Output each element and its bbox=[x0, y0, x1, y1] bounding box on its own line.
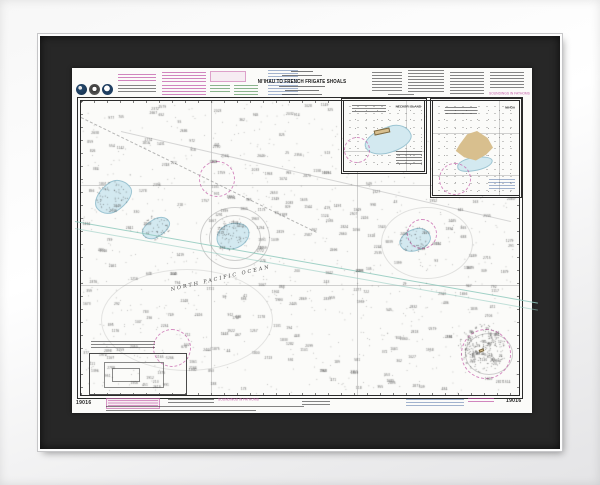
note-block bbox=[106, 406, 304, 409]
note-block bbox=[162, 72, 206, 82]
inset-necker: NECKER ISLAND bbox=[343, 100, 425, 172]
title-sub-line bbox=[282, 94, 322, 97]
note-block bbox=[388, 94, 414, 99]
danger-circle bbox=[407, 219, 437, 249]
inset-necker-label: NECKER ISLAND bbox=[396, 105, 421, 109]
shoal-patch bbox=[89, 174, 138, 221]
note-block bbox=[106, 410, 256, 412]
note-block bbox=[162, 85, 206, 95]
inset-nihoa-label: NIHOA bbox=[505, 106, 515, 110]
note-block bbox=[118, 74, 156, 82]
danger-circle bbox=[461, 329, 511, 379]
note-block bbox=[450, 72, 484, 96]
source-box-caption bbox=[91, 341, 155, 350]
source-diagram-outline bbox=[112, 368, 140, 382]
inset-title-lines bbox=[352, 105, 386, 112]
title-kicker-line bbox=[282, 75, 322, 78]
soundings-note-top: SOUNDINGS IN FATHOMS bbox=[489, 92, 530, 96]
chart-number-right: 19016 bbox=[506, 398, 521, 404]
title-sub-line bbox=[285, 90, 319, 93]
inset-title-lines bbox=[445, 107, 477, 114]
note-block bbox=[489, 179, 515, 191]
note-block bbox=[302, 401, 330, 406]
chart-title: NI'IHAU TO FRENCH FRIGATE SHOALS bbox=[247, 79, 356, 85]
note-block bbox=[490, 72, 524, 88]
note-block bbox=[406, 399, 464, 408]
soundings-note-bottom: SOUNDINGS IN FATHOMS bbox=[218, 398, 259, 402]
danger-circle bbox=[344, 137, 370, 163]
inset-nihoa: NIHOA bbox=[432, 100, 520, 196]
shoal-patch bbox=[139, 213, 174, 244]
nos-emblem-icon bbox=[102, 84, 113, 95]
source-diagram-box bbox=[89, 353, 187, 395]
chart-paper: NI'IHAU TO FRENCH FRIGATE SHOALS SOUNDIN… bbox=[72, 68, 532, 413]
tick-strip bbox=[81, 101, 83, 395]
title-sub-line bbox=[279, 86, 325, 89]
note-block bbox=[118, 85, 156, 94]
commerce-seal-icon bbox=[89, 84, 100, 95]
note-block bbox=[210, 85, 230, 94]
danger-circle bbox=[199, 161, 235, 197]
noaa-logo-icon bbox=[76, 84, 87, 95]
note-block bbox=[168, 399, 214, 403]
note-block bbox=[396, 151, 422, 165]
title-kicker-line bbox=[291, 71, 313, 74]
chart-number-left: 19016 bbox=[76, 400, 91, 406]
note-block bbox=[372, 72, 402, 92]
danger-circle bbox=[439, 163, 471, 195]
title-block: NI'IHAU TO FRENCH FRIGATE SHOALS bbox=[240, 70, 364, 98]
note-block bbox=[408, 70, 444, 92]
note-block bbox=[468, 398, 494, 404]
picture-frame: NI'IHAU TO FRENCH FRIGATE SHOALS SOUNDIN… bbox=[0, 0, 600, 485]
